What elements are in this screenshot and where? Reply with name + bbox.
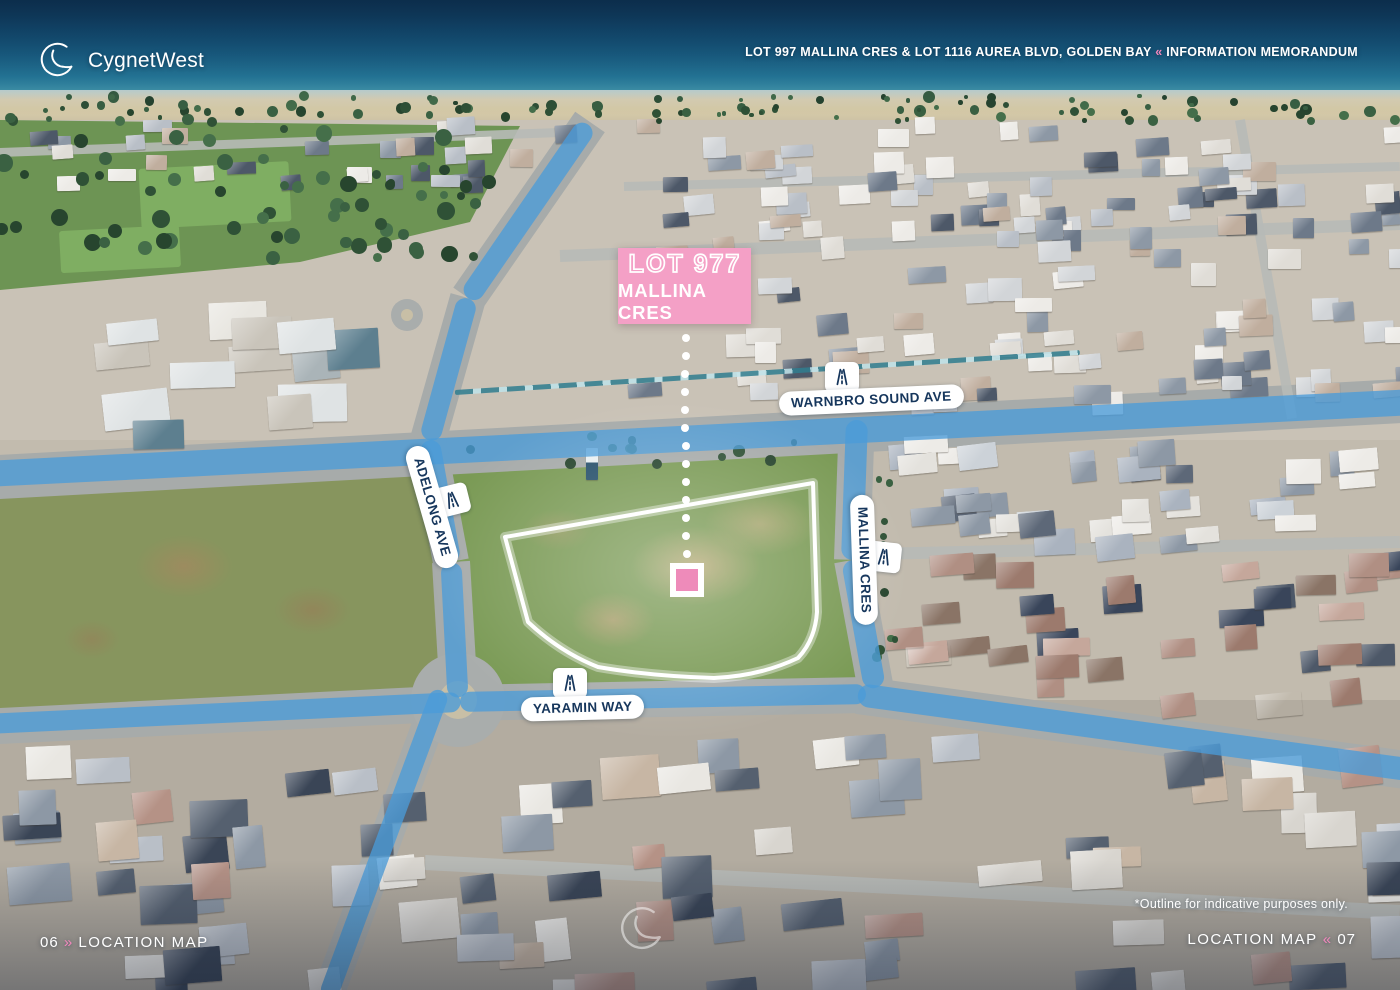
- tree: [115, 116, 125, 126]
- roof: [761, 187, 789, 207]
- roof: [1254, 588, 1292, 610]
- roof: [1365, 183, 1394, 204]
- tree: [895, 118, 901, 124]
- roof: [803, 221, 823, 238]
- roof: [1070, 461, 1097, 483]
- roof: [1385, 327, 1400, 344]
- roof: [396, 137, 416, 156]
- highlighted-road: [856, 683, 1400, 782]
- site-highlight-halo: [430, 400, 910, 740]
- roof: [996, 562, 1034, 589]
- roof: [1015, 298, 1052, 312]
- roof: [1090, 209, 1112, 227]
- roof: [106, 318, 160, 346]
- tree: [1390, 115, 1400, 125]
- roof: [1330, 677, 1362, 706]
- roof: [1349, 238, 1369, 254]
- roof: [1130, 227, 1153, 249]
- roof: [1204, 327, 1227, 346]
- tree: [1082, 118, 1087, 123]
- tree: [76, 172, 90, 186]
- roof: [1084, 152, 1117, 168]
- roof: [1164, 749, 1205, 789]
- roof: [468, 160, 486, 178]
- roof: [193, 165, 214, 182]
- tree: [437, 202, 455, 220]
- page-number-right: 07: [1337, 931, 1356, 948]
- roof: [921, 602, 961, 626]
- roof: [946, 636, 992, 657]
- roof: [914, 117, 935, 134]
- roof: [95, 819, 139, 862]
- roof: [1142, 159, 1160, 176]
- tree: [470, 198, 481, 209]
- tree: [217, 154, 233, 170]
- roof: [1286, 458, 1321, 483]
- tree: [439, 165, 449, 175]
- roof: [955, 493, 992, 514]
- roof: [1319, 602, 1365, 621]
- roof: [1116, 331, 1143, 352]
- tree: [266, 251, 280, 265]
- roof: [1078, 353, 1101, 370]
- roof: [445, 146, 467, 165]
- tree: [292, 181, 305, 194]
- roof: [1122, 499, 1149, 523]
- roof: [1225, 624, 1259, 651]
- tree: [373, 253, 382, 262]
- roof: [1137, 439, 1176, 467]
- roof: [132, 789, 174, 825]
- tree: [316, 125, 332, 141]
- roof: [1242, 777, 1295, 811]
- tree: [328, 210, 340, 222]
- roof: [1349, 553, 1390, 578]
- tree: [1307, 117, 1315, 125]
- outline-disclaimer: *Outline for indicative purposes only.: [1135, 897, 1348, 911]
- roof: [997, 231, 1019, 247]
- roof: [957, 442, 998, 471]
- tree: [482, 175, 496, 189]
- roof: [431, 175, 460, 187]
- roof: [867, 171, 897, 192]
- tree: [905, 117, 910, 122]
- tree: [10, 221, 23, 234]
- roof: [745, 150, 775, 171]
- tree: [0, 223, 8, 235]
- roof: [663, 176, 688, 191]
- tree: [203, 134, 216, 147]
- roof: [891, 190, 918, 207]
- tree: [215, 186, 226, 197]
- tree: [1125, 116, 1134, 125]
- tree: [138, 241, 152, 255]
- roof: [878, 129, 909, 147]
- footer-right: LOCATION MAP « 07: [1187, 931, 1356, 948]
- roof: [501, 814, 554, 853]
- roof: [305, 141, 329, 156]
- roof: [931, 214, 954, 232]
- tree: [834, 115, 840, 121]
- brand-logo: CygnetWest: [40, 42, 204, 80]
- roof: [1136, 137, 1170, 157]
- tree: [284, 228, 300, 244]
- roof: [1166, 464, 1193, 483]
- roof: [1200, 138, 1231, 154]
- tree: [145, 186, 155, 196]
- roof: [1159, 489, 1191, 511]
- roof: [1384, 127, 1400, 145]
- roof: [1389, 249, 1400, 269]
- tree: [20, 170, 29, 179]
- tree: [0, 154, 13, 171]
- roof: [892, 221, 916, 242]
- roof: [820, 236, 845, 260]
- roof: [1268, 249, 1301, 269]
- tree: [409, 242, 424, 257]
- svg-text:LOT 977: LOT 977: [628, 250, 741, 278]
- roof: [1028, 125, 1058, 141]
- roof: [108, 169, 136, 181]
- tree: [351, 238, 367, 254]
- tree: [46, 116, 52, 122]
- roof: [754, 826, 793, 855]
- location-map-page: LOT 977 MALLINA CRES WARNBRO SOUND AVE A…: [0, 0, 1400, 990]
- section-title-left: LOCATION MAP: [78, 934, 208, 951]
- tree: [158, 115, 163, 120]
- tree: [435, 129, 452, 146]
- roof: [1030, 177, 1052, 197]
- roof: [903, 332, 935, 356]
- roof: [600, 754, 662, 800]
- roof: [1333, 301, 1355, 322]
- tree: [416, 190, 427, 201]
- roof: [145, 155, 166, 170]
- roof: [929, 552, 975, 576]
- roof: [1036, 654, 1080, 679]
- roof: [1296, 575, 1337, 596]
- tree: [74, 134, 87, 147]
- tree: [441, 246, 458, 263]
- roof: [126, 134, 146, 150]
- roof: [1057, 265, 1094, 282]
- roof: [1000, 121, 1019, 140]
- roof: [1198, 167, 1230, 187]
- road-label-yaramin-way: YARAMIN WAY: [521, 694, 645, 721]
- roof: [770, 214, 802, 229]
- roof: [1293, 218, 1314, 238]
- roof: [1165, 157, 1188, 175]
- roof: [285, 769, 332, 798]
- roof: [1244, 349, 1271, 370]
- roof: [1020, 194, 1042, 217]
- lot-callout: LOT 977 MALLINA CRES: [618, 248, 751, 324]
- tree: [377, 237, 393, 253]
- roof: [1350, 211, 1382, 233]
- roof: [1086, 657, 1124, 683]
- roof: [1154, 249, 1181, 267]
- roof: [656, 762, 711, 795]
- roof: [908, 266, 947, 284]
- brand-name: CygnetWest: [88, 49, 204, 73]
- roof: [1242, 299, 1266, 319]
- road-icon: [553, 668, 587, 698]
- road-label-mallina-cres: MALLINA CRES: [850, 494, 879, 625]
- roof: [277, 318, 337, 355]
- tree: [340, 237, 351, 248]
- roof: [983, 207, 1011, 223]
- roof: [906, 645, 952, 668]
- roof: [894, 313, 923, 329]
- tree: [227, 221, 241, 235]
- roof: [1221, 375, 1242, 390]
- tree: [460, 180, 472, 192]
- roof: [267, 394, 313, 431]
- tree: [387, 179, 395, 187]
- roof: [1169, 204, 1191, 221]
- tree: [340, 202, 350, 212]
- roof: [1305, 811, 1357, 848]
- tree: [257, 212, 269, 224]
- roof: [839, 184, 871, 205]
- roof: [464, 136, 492, 155]
- roof: [1160, 638, 1195, 658]
- roof: [132, 419, 184, 449]
- tree: [258, 154, 268, 164]
- header-doc-type: INFORMATION MEMORANDUM: [1166, 45, 1358, 59]
- tree: [99, 237, 110, 248]
- roof: [1038, 240, 1072, 262]
- tree: [1148, 115, 1158, 125]
- roof: [1339, 447, 1379, 472]
- roof: [1218, 215, 1246, 234]
- roof: [1159, 692, 1195, 719]
- roof: [1194, 358, 1224, 380]
- roof: [1018, 510, 1056, 538]
- roof: [1185, 526, 1219, 545]
- tree: [207, 117, 217, 127]
- roof: [931, 733, 980, 762]
- roof: [628, 382, 663, 399]
- watermark-logo-icon: [620, 906, 668, 954]
- roof: [987, 645, 1029, 667]
- callout-street-name: MALLINA CRES: [618, 280, 751, 324]
- footer-left: 06 » LOCATION MAP: [40, 934, 209, 951]
- section-title-right: LOCATION MAP: [1187, 931, 1317, 948]
- page-number-left: 06: [40, 934, 59, 951]
- header-separator: «: [1155, 45, 1162, 59]
- tree: [372, 170, 381, 179]
- tree: [95, 171, 104, 180]
- roof: [25, 745, 71, 780]
- tree: [182, 114, 194, 126]
- roof: [1106, 575, 1136, 605]
- roof: [1020, 594, 1056, 617]
- road-icon: [825, 362, 859, 392]
- bottom-vignette: [0, 860, 1400, 990]
- roof: [18, 790, 56, 827]
- tree: [51, 209, 68, 226]
- roof: [714, 767, 759, 792]
- tree: [168, 173, 181, 186]
- roof: [1274, 514, 1315, 531]
- roof: [816, 312, 849, 336]
- tree: [108, 224, 122, 238]
- roof: [1191, 263, 1216, 286]
- tree: [156, 233, 172, 249]
- tree: [418, 162, 428, 172]
- roof: [925, 156, 953, 177]
- tree: [316, 171, 330, 185]
- roof: [857, 336, 885, 353]
- header-property-text: LOT 997 MALLINA CRES & LOT 1116 AUREA BL…: [745, 45, 1151, 59]
- roof: [551, 780, 592, 808]
- roof: [1043, 330, 1074, 346]
- page-title: LOT 997 MALLINA CRES & LOT 1116 AUREA BL…: [745, 45, 1358, 59]
- roof: [29, 130, 58, 146]
- roof: [755, 341, 776, 362]
- roof: [331, 768, 378, 796]
- roof: [1158, 377, 1186, 394]
- roof: [1095, 533, 1136, 562]
- roof: [170, 361, 236, 389]
- roof: [51, 145, 73, 160]
- roof: [750, 382, 779, 400]
- roof: [758, 277, 792, 294]
- lot-number-outline-text: LOT 977: [625, 248, 745, 278]
- tree: [152, 210, 170, 228]
- footer-separator-left: »: [64, 934, 73, 951]
- roof: [1338, 471, 1375, 489]
- roof: [1255, 691, 1303, 719]
- roof: [662, 212, 689, 228]
- roof: [1035, 219, 1063, 240]
- roof: [1318, 643, 1362, 666]
- tree: [656, 118, 662, 124]
- roof: [958, 513, 991, 538]
- tree: [280, 125, 288, 133]
- tree: [398, 229, 408, 239]
- roof: [976, 387, 997, 401]
- roof: [1221, 561, 1259, 581]
- footer-separator-right: «: [1323, 931, 1332, 948]
- roof: [781, 144, 813, 158]
- roof: [878, 758, 922, 801]
- roof: [510, 149, 533, 167]
- roof: [1205, 186, 1238, 201]
- roof: [911, 505, 956, 527]
- roof: [1356, 644, 1395, 667]
- tree: [271, 231, 283, 243]
- tree: [340, 176, 357, 193]
- tree: [355, 198, 369, 212]
- roundabout-island: [401, 309, 413, 321]
- tree: [99, 152, 112, 165]
- roof: [1073, 385, 1111, 404]
- roof: [1277, 184, 1305, 207]
- cygnet-swan-logo-icon: [40, 42, 78, 80]
- tree: [440, 191, 448, 199]
- roof: [703, 137, 727, 159]
- roof: [75, 757, 130, 785]
- tree: [457, 192, 465, 200]
